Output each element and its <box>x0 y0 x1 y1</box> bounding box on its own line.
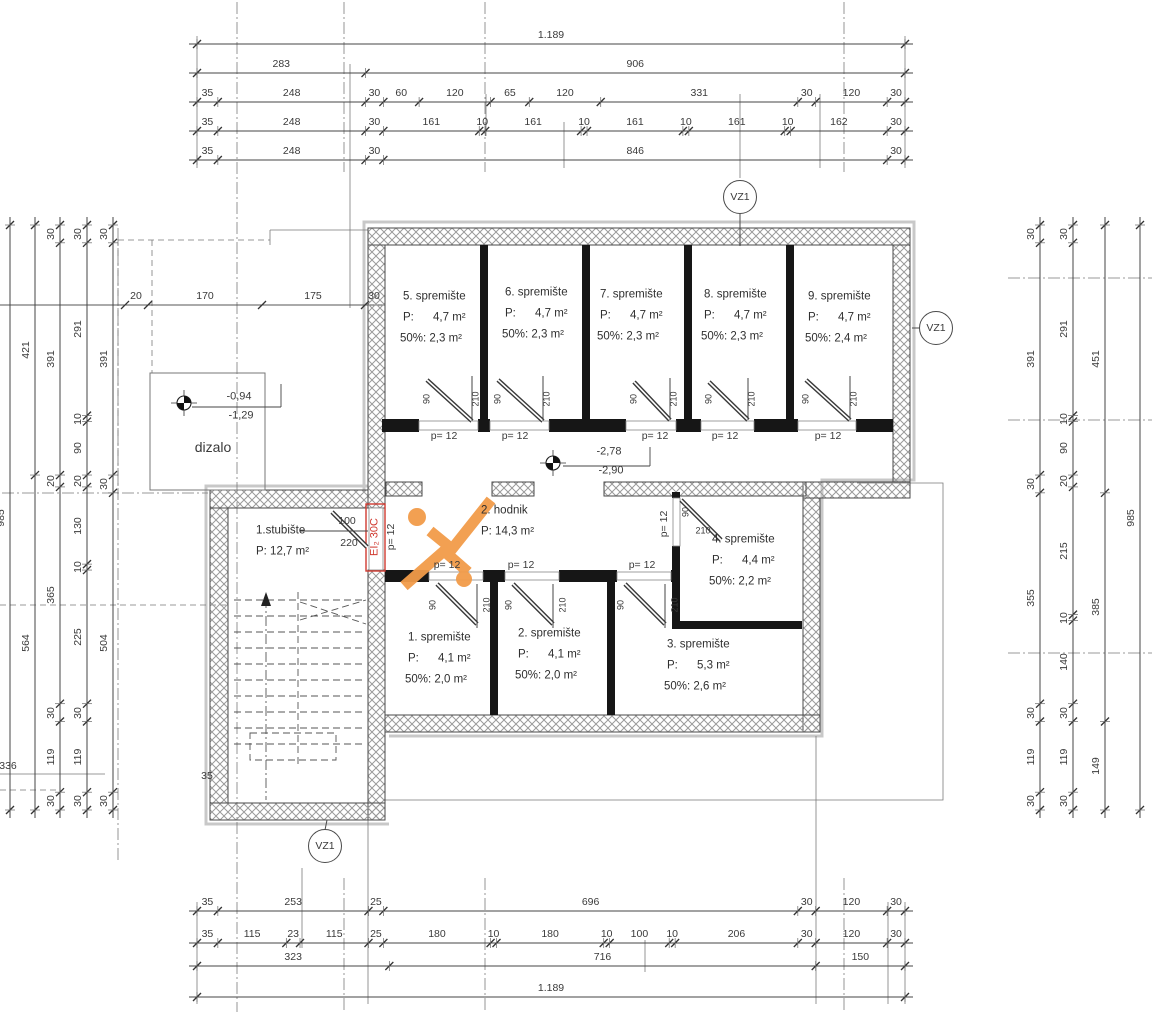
dimension-lines <box>5 39 1145 1002</box>
inner-dimension-line <box>0 301 385 309</box>
floor-plan-page: 1.18928390635248306012065120331301203035… <box>0 0 1154 1024</box>
level-marker-icon <box>171 390 197 416</box>
level-marker-icon <box>540 450 566 476</box>
outer-walls <box>210 228 910 820</box>
stair-direction-arrow <box>261 592 271 606</box>
grid-lines <box>0 2 1152 1012</box>
stairs <box>234 592 366 800</box>
floor-plan-drawing <box>0 0 1154 1024</box>
elevator-shaft <box>150 373 265 490</box>
